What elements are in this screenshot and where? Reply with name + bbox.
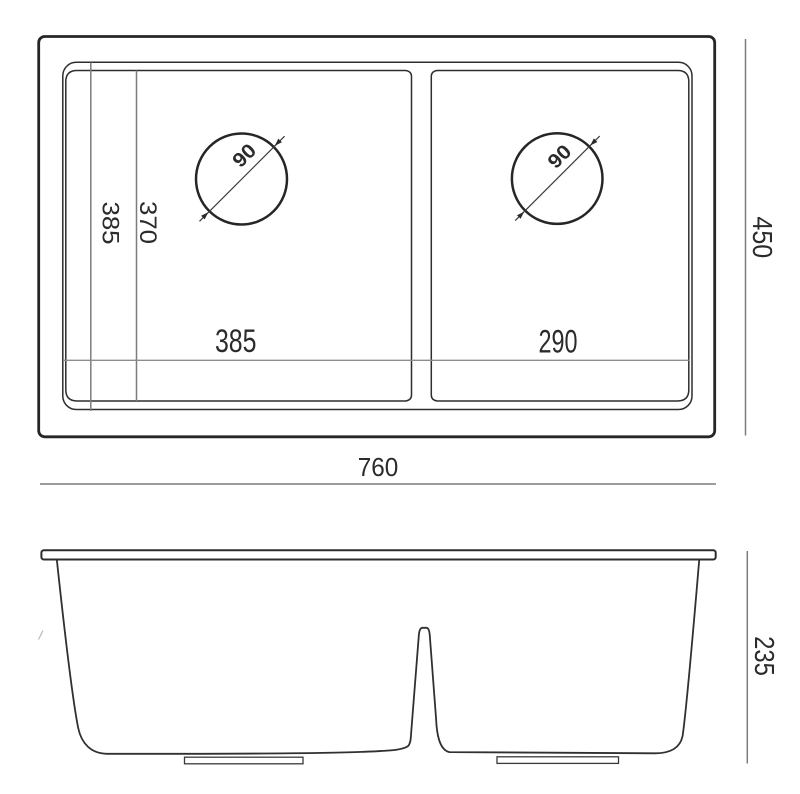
svg-text:760: 760 <box>358 452 399 482</box>
svg-text:450: 450 <box>747 216 778 258</box>
svg-text:290: 290 <box>539 324 578 360</box>
svg-text:235: 235 <box>749 636 780 676</box>
svg-text:385: 385 <box>215 323 257 359</box>
svg-text:370: 370 <box>134 201 161 244</box>
svg-text:385: 385 <box>97 202 124 245</box>
